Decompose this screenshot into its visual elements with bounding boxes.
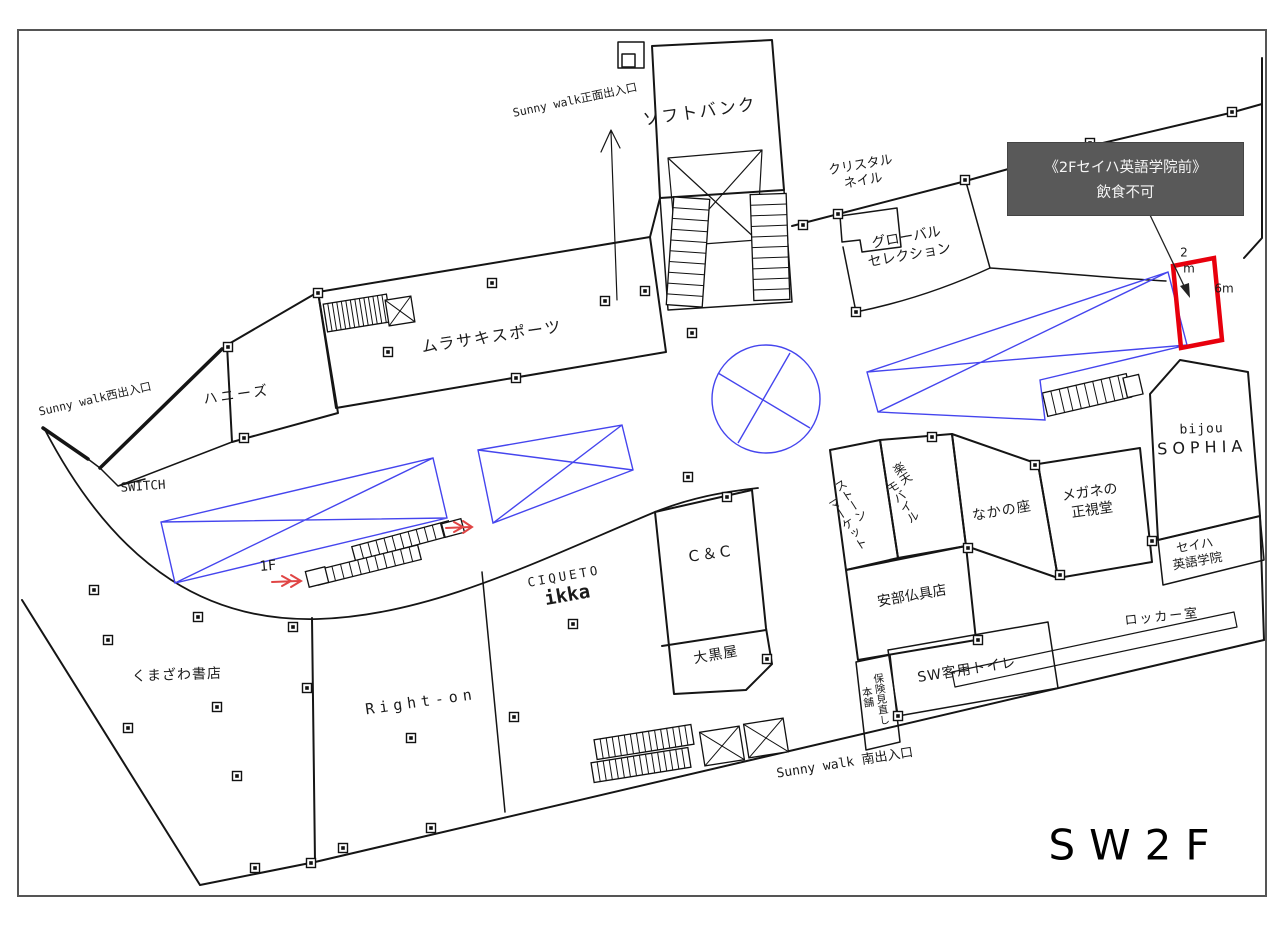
closed-zone-overlays — [161, 272, 1187, 583]
label-store-bijou-sophia: bijou SOPHIA — [1156, 420, 1247, 459]
notice-leader-arrowhead — [1180, 283, 1190, 298]
label-store-switch: SWITCH — [120, 477, 166, 496]
label-store-kumazawa: くまざわ書店 — [132, 666, 223, 687]
floor-title: SW2F — [1048, 821, 1223, 870]
notice-line2: 飲食不可 — [1097, 181, 1155, 202]
highlight-spot-rect — [1173, 258, 1222, 348]
closed-zone-center — [478, 425, 633, 523]
dim-width-unit: m — [1183, 262, 1195, 277]
notice-box: 《2Fセイハ英語学院前》 飲食不可 — [1008, 143, 1243, 215]
atrium-circle — [712, 345, 820, 453]
dim-width-digit: 2 — [1180, 246, 1188, 261]
floorplan-page: 《2Fセイハ英語学院前》 飲食不可 2 m 6m Sunny walk正面出入口… — [0, 0, 1284, 946]
notice-line1: 《2Fセイハ英語学院前》 — [1044, 156, 1206, 177]
closed-zone-right — [867, 272, 1187, 420]
dim-height: 6m — [1214, 282, 1233, 297]
floorplan-drawing — [0, 0, 1284, 946]
flow-arrow-1f-left — [272, 575, 301, 587]
main-entrance-arrow — [601, 130, 620, 300]
label-1f-link: 1F — [259, 558, 277, 577]
